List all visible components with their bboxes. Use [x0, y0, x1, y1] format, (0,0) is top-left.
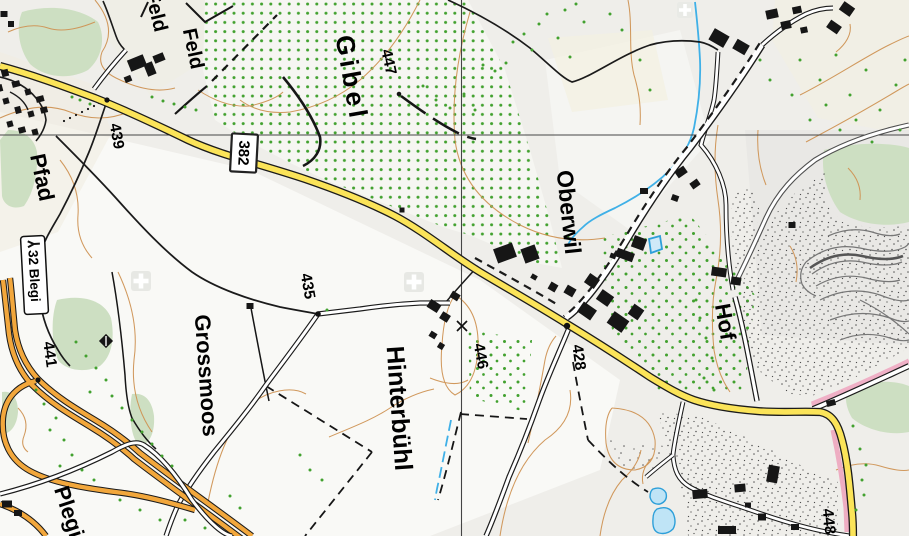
svg-text:382: 382: [234, 140, 252, 166]
svg-text:441: 441: [39, 340, 59, 368]
svg-text:448: 448: [819, 508, 839, 536]
svg-text:32 Blegi: 32 Blegi: [25, 250, 43, 302]
svg-text:428: 428: [568, 343, 588, 371]
